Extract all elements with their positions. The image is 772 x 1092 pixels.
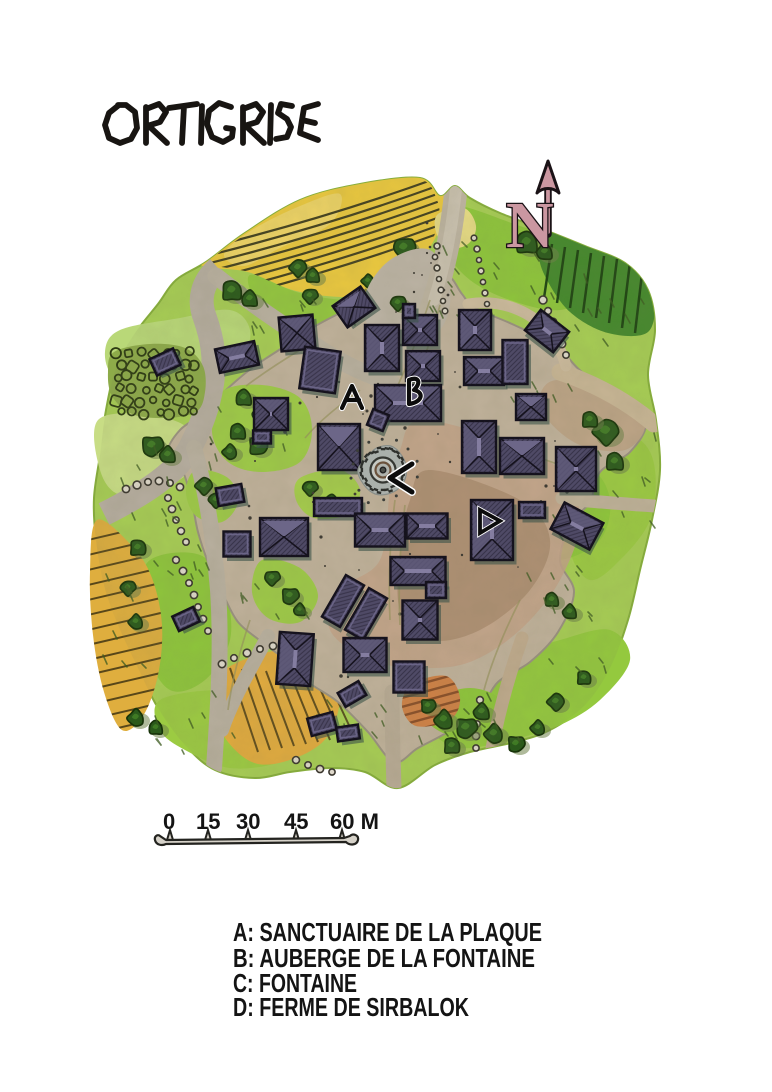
svg-text:D: FERME DE SIRBALOK: D: FERME DE SIRBALOK: [233, 992, 469, 1022]
svg-text:60 M: 60 M: [330, 809, 379, 834]
svg-text:N: N: [506, 189, 554, 262]
